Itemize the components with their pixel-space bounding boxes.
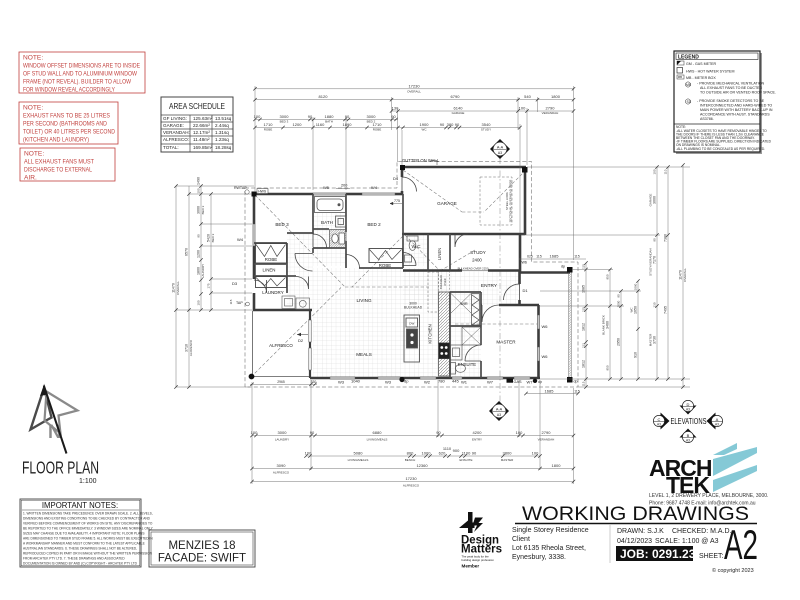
svg-text:NOTE:: NOTE: [23,105,43,112]
svg-text:BULKHEAD: BULKHEAD [404,306,423,310]
svg-text:1812: 1812 [582,360,586,368]
svg-text:MB: MB [678,75,682,79]
svg-text:(KITCHEN AND LAUNDRY): (KITCHEN AND LAUNDRY) [23,137,89,144]
svg-text:ALFRESCO: ALFRESCO [269,343,293,348]
svg-text:6140: 6140 [454,106,464,111]
svg-text:W5: W5 [323,185,330,190]
svg-text:B: B [687,433,690,438]
svg-text:LEGEND: LEGEND [678,54,699,60]
svg-text:W4: W4 [371,185,378,190]
svg-text:FACADE: SWIFT: FACADE: SWIFT [158,553,246,565]
svg-text:A3: A3 [686,439,690,443]
svg-text:1:100: 1:100 [79,478,97,485]
svg-text:7380: 7380 [664,234,668,242]
svg-text:LIVING: LIVING [356,298,371,303]
svg-text:STUDY/VERANDAH: STUDY/VERANDAH [649,248,653,276]
svg-text:100: 100 [519,106,526,111]
svg-text:6790: 6790 [451,94,461,99]
svg-text:GARAGE: GARAGE [649,194,653,207]
svg-text:WIR: WIR [460,302,468,306]
svg-text:1685: 1685 [582,285,586,293]
svg-text:1900: 1900 [420,122,430,127]
svg-text:7170: 7170 [653,256,657,264]
svg-text:MASTER: MASTER [501,458,514,462]
svg-text:540: 540 [524,94,531,99]
svg-text:OF STUD WALL AND TO ALUMINIUM: OF STUD WALL AND TO ALUMINIUM WINDOW [23,71,138,78]
svg-text:BULKHEAD: BULKHEAD [439,275,443,289]
svg-text:ENTRY: ENTRY [472,438,482,442]
svg-text:3730: 3730 [653,336,657,344]
svg-text:A3: A3 [497,413,501,417]
svg-text:6880: 6880 [373,430,383,435]
svg-text:90: 90 [308,114,313,119]
svg-text:ROBE: ROBE [373,128,382,132]
svg-text:3460: 3460 [606,321,610,329]
svg-text:A-A: A-A [497,146,504,150]
svg-text:Single Storey Residence: Single Storey Residence [512,527,589,534]
svg-text:W3: W3 [385,380,392,385]
svg-text:90: 90 [472,451,477,456]
svg-text:FOR WINDOW REVEAL ACCORDINGLY: FOR WINDOW REVEAL ACCORDINGLY [23,87,115,94]
svg-text:11470: 11470 [172,283,176,293]
svg-text:WINDOW OFFSET DIMENSIONS ARE T: WINDOW OFFSET DIMENSIONS ARE TO INSIDE [23,63,140,70]
svg-text:A3: A3 [657,423,661,427]
svg-text:W.C: W.C [411,244,421,250]
svg-text:1.23sq: 1.23sq [215,137,229,142]
svg-text:Member: Member [462,564,480,569]
svg-text:90: 90 [440,122,445,127]
svg-text:AIR.: AIR. [24,175,37,182]
svg-text:AUSTRALIAN STANDARDS. 6. THESE: AUSTRALIAN STANDARDS. 6. THESE DRAWINGS … [23,547,137,551]
svg-text:2400: 2400 [472,258,482,263]
svg-text:A3: A3 [686,408,690,412]
svg-text:12.17m²: 12.17m² [193,130,210,135]
svg-text:ALL EXHAUST FANS TO BE DUCTED: ALL EXHAUST FANS TO BE DUCTED [700,86,763,90]
svg-text:C: C [658,417,661,422]
svg-text:100: 100 [532,451,539,456]
svg-text:950: 950 [606,365,610,370]
svg-text:W2: W2 [424,380,431,385]
svg-text:22.66m²: 22.66m² [193,123,210,128]
svg-text:1100: 1100 [462,451,471,456]
svg-text:1800: 1800 [552,463,562,468]
svg-text:VERANDAH: VERANDAH [542,111,559,115]
svg-text:200: 200 [341,184,347,188]
svg-text:dp: dp [574,380,578,384]
svg-text:90: 90 [197,234,201,238]
svg-text:LIVING/MEALS: LIVING/MEALS [367,438,388,442]
svg-text:GARAGE: GARAGE [452,111,465,115]
svg-text:NOTE:: NOTE: [23,55,43,62]
svg-text:112: 112 [582,343,586,348]
svg-text:4200: 4200 [473,430,483,435]
svg-text:dp: dp [561,265,565,269]
svg-text:DIMENSIONS AND EXISTING CONDIT: DIMENSIONS AND EXISTING CONDITIONS TO BE… [23,517,151,521]
svg-text:LAUNDRY: LAUNDRY [201,264,205,278]
svg-text:100: 100 [197,300,201,305]
svg-text:7495: 7495 [664,306,668,314]
svg-text:STUDY: STUDY [470,250,486,255]
svg-text:11470: 11470 [679,270,683,280]
svg-text:NOTE:: NOTE: [24,151,44,158]
svg-text:620: 620 [439,451,446,456]
svg-text:910: 910 [634,352,638,358]
svg-text:CHECKED: M.A.D.: CHECKED: M.A.D. [672,528,732,535]
svg-text:BED 3: BED 3 [201,205,205,214]
svg-text:130: 130 [653,302,657,307]
svg-text:ELEVATIONS: ELEVATIONS [671,417,707,426]
svg-text:445: 445 [452,379,459,384]
svg-text:90: 90 [653,238,657,242]
svg-text:OVER: OVER [443,278,447,285]
svg-text:WORKING DRAWINGS: WORKING DRAWINGS [522,503,749,525]
svg-text:EXHAUST FANS TO BE 25 LITRES: EXHAUST FANS TO BE 25 LITRES [23,113,110,120]
svg-text:LINEN: LINEN [263,268,276,273]
svg-text:BED 3: BED 3 [280,120,289,124]
svg-text:VERANDAH:: VERANDAH: [163,130,190,135]
svg-text:BATH: BATH [325,120,333,124]
svg-text:GAS: GAS [514,380,522,384]
svg-text:SHEET:: SHEET: [699,553,724,560]
svg-text:MB - METER BOX: MB - METER BOX [686,76,716,80]
svg-text:1040: 1040 [351,379,361,384]
svg-text:3710: 3710 [185,344,189,352]
svg-text:INTERCONNECTED AND HARD-WIRED: INTERCONNECTED AND HARD-WIRED TO [700,104,772,108]
svg-text:DOCUMENTATION IS OWNED BY AND: DOCUMENTATION IS OWNED BY AND (C) COPYRI… [23,562,138,566]
svg-text:2.44sq: 2.44sq [215,123,229,128]
svg-text:1. WRITTEN DIMENSIONS TAKE PRE: 1. WRITTEN DIMENSIONS TAKE PRECEDENCE OV… [23,512,153,516]
svg-text:1800: 1800 [197,267,201,275]
svg-text:BATH: BATH [321,220,333,225]
svg-text:8120: 8120 [319,94,329,99]
svg-text:SCALE: 1:100 @ A3: SCALE: 1:100 @ A3 [655,538,719,545]
svg-text:1200: 1200 [293,122,303,127]
svg-text:A3: A3 [715,423,719,427]
svg-text:Client: Client [512,536,530,543]
svg-text:D3: D3 [232,281,238,286]
svg-text:100: 100 [305,451,312,456]
svg-text:OVERALL: OVERALL [683,268,687,282]
svg-text:W4: W4 [237,237,244,242]
svg-text:BULKHEAD OVER 2250: BULKHEAD OVER 2250 [458,266,489,270]
svg-text:125.63m²: 125.63m² [193,116,213,121]
svg-text:ALFRESCO:: ALFRESCO: [163,137,189,142]
svg-text:STUDY: STUDY [481,128,491,132]
svg-text:BLANK BRICK: BLANK BRICK [602,315,606,335]
svg-text:KITCHEN: KITCHEN [428,324,433,343]
svg-text:110: 110 [664,169,668,174]
svg-text:LAUNDRY: LAUNDRY [262,290,283,295]
svg-text:1110: 1110 [443,446,452,451]
svg-text:1650: 1650 [634,306,638,314]
svg-text:W7: W7 [527,380,534,385]
svg-text:800: 800 [407,451,414,456]
svg-text:04/12/2023: 04/12/2023 [617,538,652,545]
svg-text:-ALL PLUMBING TO BE CONCEALED: -ALL PLUMBING TO BE CONCEALED AS PER REQ… [676,147,765,151]
svg-text:1.31sq: 1.31sq [215,130,229,135]
svg-text:3000: 3000 [278,430,288,435]
svg-text:ME: ME [686,83,692,87]
svg-text:115: 115 [582,381,586,386]
svg-text:ROBE: ROBE [265,257,278,262]
svg-text:3800: 3800 [503,451,513,456]
svg-text:DW: DW [409,322,414,326]
svg-text:D4: D4 [393,176,399,181]
svg-text:FRAME (NOT REVEAL). BUILDER TO: FRAME (NOT REVEAL). BUILDER TO ALLOW [23,79,132,86]
svg-text:W3: W3 [338,380,345,385]
svg-text:18.28sq: 18.28sq [215,145,232,150]
svg-text:MENZIES 18: MENZIES 18 [168,540,235,552]
svg-text:LIVING/MEALS: LIVING/MEALS [348,458,369,462]
svg-text:BED 2: BED 2 [367,222,381,227]
svg-text:BE REPORTED TO THE OFFICE IMME: BE REPORTED TO THE OFFICE IMMEDIATELY. 3… [23,527,154,531]
svg-text:780: 780 [438,379,445,384]
svg-text:A2: A2 [724,521,758,568]
svg-text:TO OUTSIDE AIR OR VENTED ROOF: TO OUTSIDE AIR OR VENTED ROOF SPACE. [700,91,776,95]
svg-text:GARAGE: GARAGE [437,201,457,206]
svg-text:LINEN: LINEN [437,248,442,260]
svg-text:A WORKMANSHIP MANNER AND MUST: A WORKMANSHIP MANNER AND MUST CONFORM TO… [23,542,145,546]
svg-text:1685: 1685 [545,388,555,393]
svg-text:ALFRESCO: ALFRESCO [273,471,290,475]
svg-text:950: 950 [606,274,610,279]
svg-text:MASTER: MASTER [649,333,653,346]
svg-text:W6: W6 [522,261,527,265]
svg-text:ROBE: ROBE [264,128,273,132]
svg-text:- PROVIDE SMOKE DETECTORS TO B: - PROVIDE SMOKE DETECTORS TO BE [697,99,765,103]
svg-text:115: 115 [582,307,586,312]
svg-text:MASTER: MASTER [496,340,516,345]
svg-text:FROM ARCHTEK PTY LTD. 7. THESE: FROM ARCHTEK PTY LTD. 7. THESE DRAWINGS … [23,557,125,561]
svg-text:90: 90 [345,114,350,119]
svg-text:1000: 1000 [422,451,432,456]
svg-text:DRAWN: S.J.K: DRAWN: S.J.K [617,528,664,535]
svg-text:building design profession: building design profession [462,558,495,562]
svg-text:115: 115 [536,255,542,259]
svg-text:1685: 1685 [550,254,560,259]
svg-text:13.51sq: 13.51sq [215,116,232,121]
svg-text:ROBE: ROBE [379,263,392,268]
svg-text:BED 3: BED 3 [275,222,289,227]
svg-text:2790: 2790 [542,430,552,435]
svg-text:MEALS: MEALS [356,352,372,357]
svg-text:ENSUITE: ENSUITE [458,362,476,367]
svg-text:3540: 3540 [482,122,492,127]
svg-text:W6: W6 [542,354,549,359]
svg-text:100: 100 [653,169,657,174]
svg-text:TOTAL:: TOTAL: [163,145,179,150]
svg-text:BED 3: BED 3 [211,233,215,242]
svg-text:dp: dp [404,379,409,384]
svg-text:AREA SCHEDULE: AREA SCHEDULE [169,102,225,111]
svg-text:1060: 1060 [634,283,638,290]
svg-text:GARAGE:: GARAGE: [163,123,184,128]
svg-text:GF LIVING:: GF LIVING: [163,116,187,121]
svg-text:1710: 1710 [264,122,274,127]
svg-text:3000: 3000 [653,196,657,204]
svg-text:17230: 17230 [408,83,420,88]
svg-text:W1: W1 [461,380,468,385]
svg-text:D2: D2 [298,338,304,343]
svg-text:ALL EXHAUST FANS MUST: ALL EXHAUST FANS MUST [24,159,94,166]
svg-text:ENTRY: ENTRY [481,283,498,289]
svg-text:1812: 1812 [582,323,586,331]
svg-text:- PROVIDE MECHANICAL VENTILATI: - PROVIDE MECHANICAL VENTILATION [697,82,764,86]
svg-text:RWTAP: RWTAP [234,186,247,190]
svg-text:ENSUITE: ENSUITE [459,458,472,462]
svg-text:HWS - HOT WATER SYSTEM: HWS - HOT WATER SYSTEM [686,70,734,74]
svg-text:SECTIONAL OVERHEAD DOOR: SECTIONAL OVERHEAD DOOR [509,180,513,223]
svg-text:D: D [687,402,690,407]
svg-text:90: 90 [391,114,396,119]
svg-text:3000: 3000 [280,114,290,119]
svg-text:W6: W6 [542,324,549,329]
svg-text:1710: 1710 [373,122,383,127]
svg-text:1200: 1200 [197,250,201,258]
svg-text:© copyright 2023: © copyright 2023 [712,567,754,574]
svg-text:3090: 3090 [277,463,287,468]
svg-text:BENCH: BENCH [405,458,416,462]
svg-text:2790: 2790 [546,106,556,111]
svg-text:900: 900 [453,448,460,453]
svg-text:90: 90 [455,122,460,127]
svg-text:6570: 6570 [185,248,189,256]
svg-text:FLOOR PLAN: FLOOR PLAN [22,458,99,478]
svg-text:W7: W7 [487,380,494,385]
svg-text:100: 100 [197,188,201,193]
svg-text:A: A [716,417,719,422]
svg-text:1800: 1800 [551,94,561,99]
svg-text:ALFRESCO: ALFRESCO [403,484,420,488]
svg-text:AS3786.: AS3786. [700,117,714,121]
svg-text:175: 175 [207,283,211,288]
svg-text:90: 90 [617,294,621,298]
svg-text:3000: 3000 [197,206,201,214]
svg-text:LAUNDRY: LAUNDRY [275,438,289,442]
svg-text:SIZES MAY CHANGE DUE TO AVAILA: SIZES MAY CHANGE DUE TO AVAILABILITY. 4 … [23,532,144,536]
svg-text:WC: WC [422,128,428,132]
svg-text:A-A: A-A [496,408,503,412]
svg-text:100: 100 [254,114,261,119]
svg-text:MAIN POWER WITH BATTERY BACK-U: MAIN POWER WITH BATTERY BACK-UP IN [700,108,773,112]
svg-text:115: 115 [229,299,233,304]
svg-text:380: 380 [447,122,454,127]
svg-text:115: 115 [574,389,580,393]
svg-text:Lot 6135 Rheola Street,: Lot 6135 Rheola Street, [512,545,586,552]
svg-text:TAP: TAP [236,301,243,305]
svg-text:1880: 1880 [325,114,335,119]
svg-text:90: 90 [436,430,441,435]
svg-text:LEVEL 1, 2 DREWERY PLACE, MELB: LEVEL 1, 2 DREWERY PLACE, MELBOURNE, 300… [649,493,768,499]
svg-text:100: 100 [516,430,523,435]
svg-text:D1: D1 [523,288,529,293]
svg-text:17230: 17230 [405,476,417,481]
svg-text:GM - GAS METER: GM - GAS METER [686,62,717,66]
svg-text:330: 330 [311,380,317,384]
svg-text:625: 625 [527,255,533,259]
svg-text:2965: 2965 [277,380,285,384]
svg-text:VERANDAH: VERANDAH [538,438,555,442]
svg-text:SD: SD [687,100,692,104]
svg-text:3000: 3000 [367,114,377,119]
svg-text:1490: 1490 [197,177,201,185]
svg-text:169.85m²: 169.85m² [193,145,213,150]
svg-text:5080: 5080 [354,451,364,456]
svg-text:2950: 2950 [617,338,621,346]
svg-text:130: 130 [392,106,399,111]
svg-text:JOB: 0291.23: JOB: 0291.23 [620,547,696,561]
svg-text:HWS: HWS [258,190,267,194]
svg-text:ARE DIMENSIONED TO TIMBER STUD: ARE DIMENSIONED TO TIMBER STUD FRAME 5. … [23,537,153,541]
svg-text:1890: 1890 [343,122,353,127]
svg-text:12360: 12360 [416,463,428,468]
svg-text:DISCHARGE TO EXTERNAL: DISCHARGE TO EXTERNAL [24,167,92,174]
svg-text:ACCORDANCE WITH AUST. STANDARD: ACCORDANCE WITH AUST. STANDARDS [700,113,770,117]
svg-text:A3: A3 [498,151,502,155]
svg-text:775: 775 [394,199,400,203]
svg-text:TOILET) OR 40 LITRES PER SECON: TOILET) OR 40 LITRES PER SECOND [23,129,115,136]
svg-text:5420: 5420 [207,234,211,242]
svg-text:1160: 1160 [316,122,325,127]
svg-text:1000: 1000 [617,300,621,307]
svg-text:REPRODUCED COPIED IN PART OR I: REPRODUCED COPIED IN PART OR IN IMAGE WI… [23,552,153,556]
svg-text:VERIFIED BEFORE COMMENCEMENT O: VERIFIED BEFORE COMMENCEMENT OF WORKS ON… [23,522,153,526]
svg-text:Eynesbury, 3338.: Eynesbury, 3338. [512,554,566,561]
svg-text:WC: WC [630,307,634,313]
svg-text:ALFRESCO: ALFRESCO [189,339,193,356]
svg-text:90: 90 [310,430,315,435]
svg-text:IMPORTANT NOTES:: IMPORTANT NOTES: [42,501,118,510]
svg-text:100: 100 [251,430,258,435]
svg-text:OVERALL: OVERALL [407,90,421,94]
svg-text:115: 115 [582,264,586,269]
svg-text:OVERALL: OVERALL [176,281,180,295]
svg-text:11.48m²: 11.48m² [193,137,210,142]
svg-text:115: 115 [574,255,580,259]
svg-text:PER SECOND (BATHROOMS AND: PER SECOND (BATHROOMS AND [23,121,107,128]
